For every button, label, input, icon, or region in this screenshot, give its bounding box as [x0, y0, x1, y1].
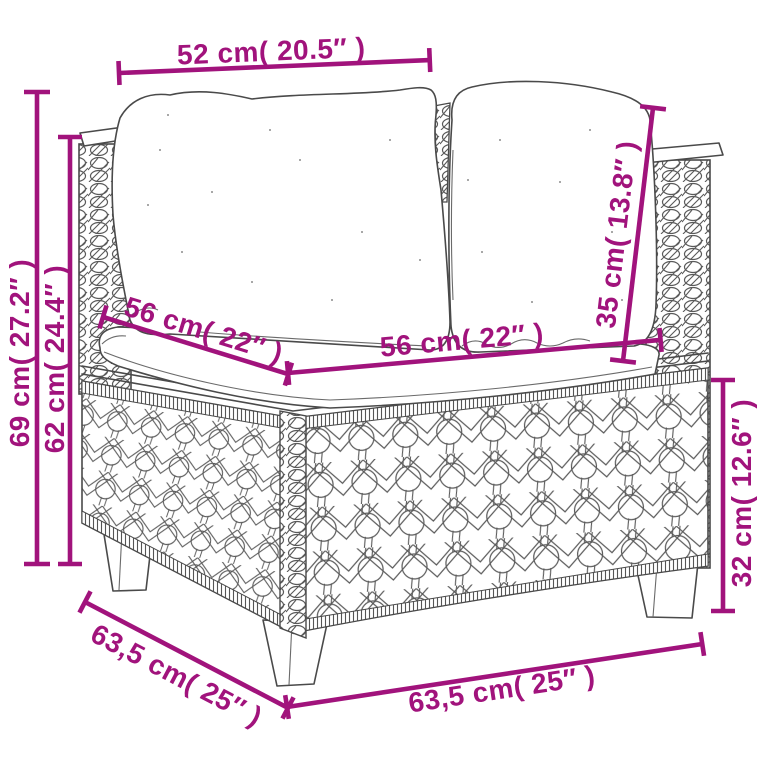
dimension-side-height: 62 cm( 24.4″ ): [39, 137, 82, 564]
base-corner-strip: [280, 411, 306, 638]
dimension-label-base-width: 63,5 cm( 25″ ): [406, 660, 597, 719]
dimension-label-base-height: 32 cm( 12.6″ ): [726, 399, 757, 588]
dimension-top-width: 52 cm( 20.5″ ): [118, 29, 431, 85]
dimension-label-base-depth: 63,5 cm( 25″ ): [86, 618, 267, 733]
sofa-dimension-illustration: 52 cm( 20.5″ ) 69 cm( 27.2″ ) 62 cm( 24.…: [0, 0, 767, 767]
dimension-base-height: 32 cm( 12.6″ ): [711, 380, 757, 611]
dimension-base-width: 63,5 cm( 25″ ): [285, 632, 707, 737]
dimension-diagram: 52 cm( 20.5″ ) 69 cm( 27.2″ ) 62 cm( 24.…: [0, 0, 767, 767]
dimension-label-side-height: 62 cm( 24.4″ ): [39, 265, 70, 454]
dimension-label-overall-height: 69 cm( 27.2″ ): [4, 259, 35, 448]
